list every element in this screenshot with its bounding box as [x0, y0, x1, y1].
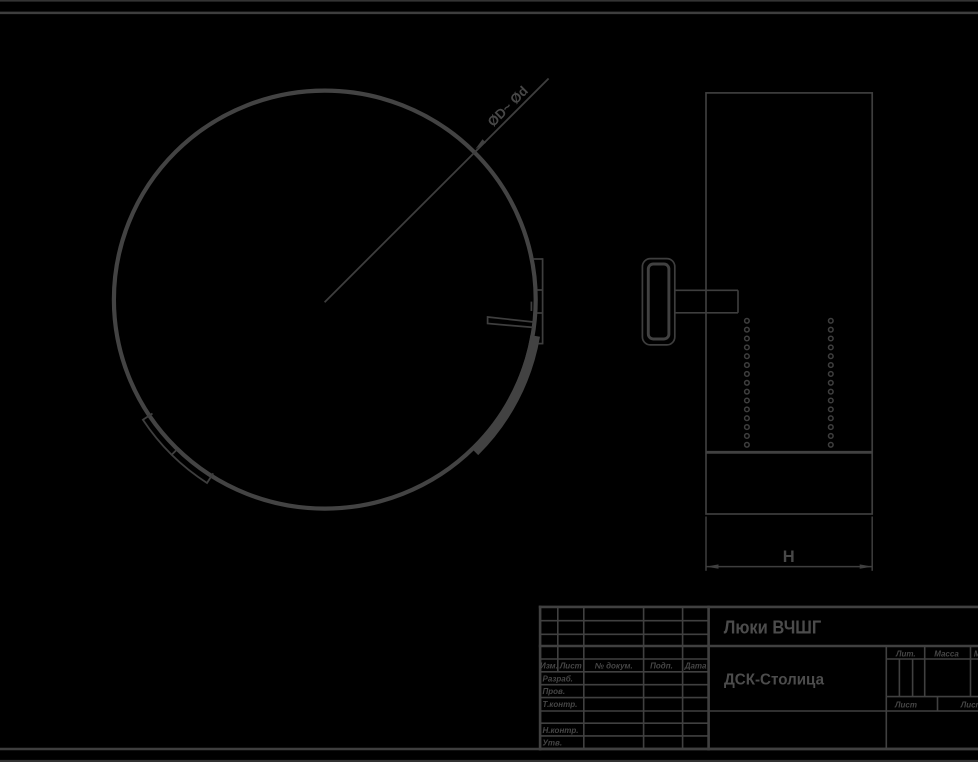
svg-text:ДСК-Столица: ДСК-Столица	[724, 672, 824, 689]
svg-text:Подп.: Подп.	[650, 661, 673, 670]
svg-text:Лит.: Лит.	[895, 650, 916, 659]
svg-text:Т.контр.: Т.контр.	[543, 700, 578, 709]
svg-text:Лист: Лист	[894, 701, 917, 710]
svg-text:Изм.: Изм.	[540, 661, 558, 670]
svg-text:Н: Н	[783, 548, 795, 566]
svg-text:Масштаб: Масштаб	[974, 650, 978, 659]
svg-text:Масса: Масса	[934, 650, 959, 659]
svg-text:Лист: Лист	[559, 661, 582, 670]
svg-text:Утв.: Утв.	[543, 739, 563, 748]
svg-text:Н.контр.: Н.контр.	[543, 726, 579, 735]
svg-text:Дата: Дата	[684, 661, 707, 670]
svg-text:Разраб.: Разраб.	[543, 674, 573, 683]
svg-text:Люки ВЧШГ: Люки ВЧШГ	[724, 617, 822, 638]
svg-text:Пров.: Пров.	[543, 687, 566, 696]
svg-text:Листов: Листов	[960, 701, 978, 710]
svg-text:№ докум.: № докум.	[595, 661, 633, 670]
